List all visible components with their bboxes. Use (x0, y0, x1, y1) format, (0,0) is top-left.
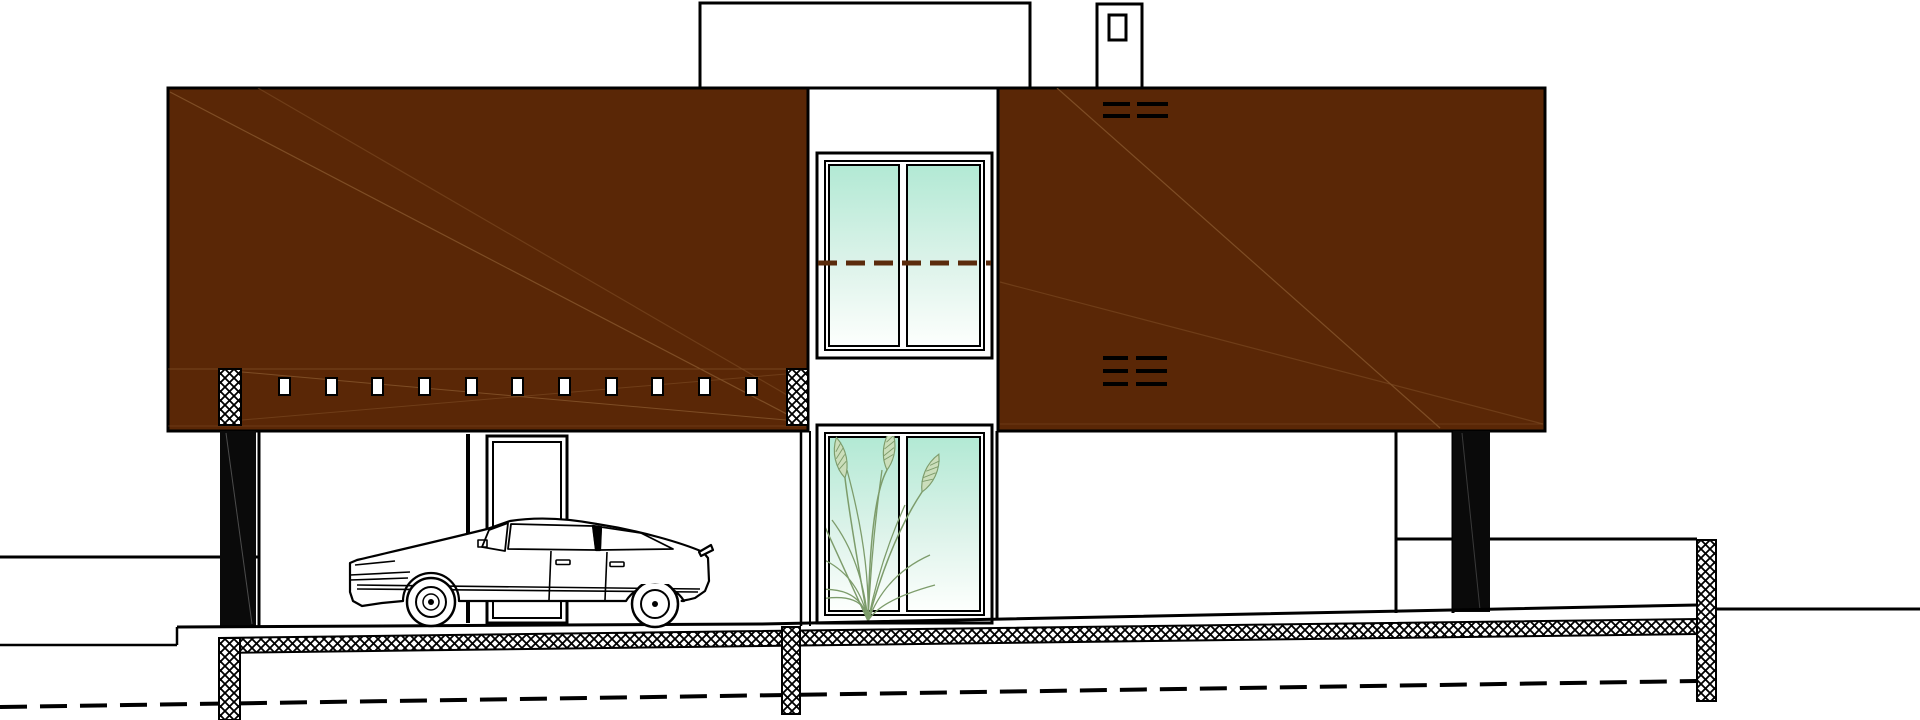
shadow-recess (1453, 431, 1490, 612)
chimney-flue-opening (1109, 15, 1126, 40)
car-front-wheel (407, 578, 455, 626)
facade-panel-left (168, 88, 808, 431)
upper-window (817, 153, 992, 358)
upper-window-pane-right (907, 165, 980, 346)
foundation-pier-centre (782, 627, 800, 714)
elevation-drawing (0, 0, 1920, 720)
retaining-wall (1697, 540, 1716, 701)
upper-window-pane-left (829, 165, 899, 346)
lower-window-pane-right (907, 437, 980, 611)
foundation-pier-left (219, 638, 240, 720)
chimney (1097, 4, 1142, 88)
carport-pillar (220, 431, 256, 626)
facade-panel-right (998, 88, 1545, 431)
roof-monitor-box (700, 3, 1030, 88)
facade-hatch-column-right (787, 369, 808, 425)
car-rear-wheel (632, 581, 678, 627)
facade-hatch-column-left (219, 369, 241, 425)
lower-window (800, 425, 992, 623)
